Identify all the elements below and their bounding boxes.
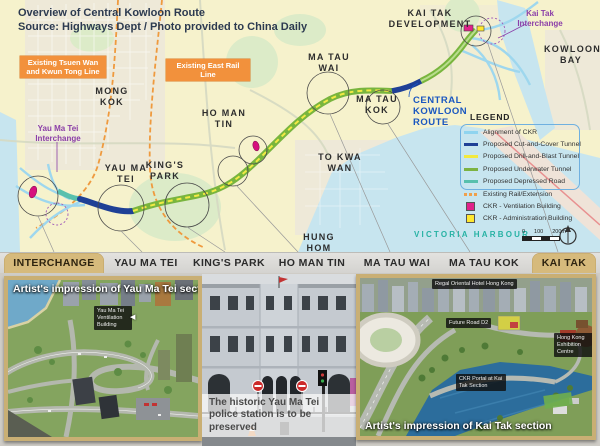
legend: LEGEND Alignment of CKR Proposed Cut-and… [458, 112, 600, 225]
legend-title: LEGEND [470, 112, 600, 122]
alignment-swatch [464, 131, 478, 134]
section-tabbar: INTERCHANGE YAU MA TEI KING'S PARK HO MA… [0, 252, 600, 274]
left-photo-caption: Artist's impression of Yau Ma Tei sectio… [13, 283, 202, 295]
middle-photo-caption: The historic Yau Ma Tei police station i… [202, 394, 356, 438]
page-source: Source: Highways Dept / Photo provided t… [18, 20, 307, 34]
scale-bar: 0 100 200m [522, 229, 566, 241]
legend-item: Proposed Cut-and-Cover Tunnel [458, 138, 600, 150]
drill-and-blast-swatch [464, 155, 478, 158]
district-kings-park: KING'S PARK [142, 160, 188, 181]
underwater-tunnel-swatch [464, 168, 478, 171]
tab-interchange[interactable]: INTERCHANGE [4, 253, 104, 274]
tab-ma-tau-kok[interactable]: MA TAU KOK [442, 253, 526, 274]
photo-yau-ma-tei-section: Artist's impression of Yau Ma Tei sectio… [4, 276, 202, 441]
legend-item: Existing Rail/Extension [458, 188, 600, 200]
legend-item: Proposed Drill-and-Blast Tunnel [458, 151, 600, 163]
district-kowloon-bay: KOWLOON BAY [544, 44, 598, 65]
district-ma-tau-wai: MA TAU WAI [298, 52, 360, 73]
district-ma-tau-kok: MA TAU KOK [354, 94, 400, 115]
kai-tak-rendering [360, 278, 592, 436]
cut-and-cover-swatch [464, 143, 478, 146]
rail-label-tsuen-wan: Existing Tsuen Wan and Kwun Tong Line [20, 56, 106, 78]
yau-ma-tei-rendering [8, 280, 198, 437]
label-victoria-harbour: VICTORIA HARBOUR [414, 230, 530, 239]
right-photo-caption: Artist's impression of Kai Tak section [365, 420, 552, 432]
rail-label-east-rail: Existing East Rail Line [166, 59, 250, 81]
district-hung-hom: HUNG HOM [290, 232, 348, 253]
district-mong-kok: MONG KOK [82, 86, 142, 107]
district-kai-tak-development: KAI TAK DEVELOPMENT [388, 8, 472, 29]
tab-kai-tak[interactable]: KAI TAK [532, 253, 596, 274]
administration-building-swatch [466, 214, 475, 223]
tab-ho-man-tin[interactable]: HO MAN TIN [272, 253, 352, 274]
ventilation-building-label: Yau Ma Tei Ventilation Building [94, 306, 132, 330]
tab-ma-tau-wai[interactable]: MA TAU WAI [356, 253, 438, 274]
page-title: Overview of Central Kowloon Route [18, 6, 307, 20]
infographic-page: Overview of Central Kowloon Route Source… [0, 0, 600, 446]
legend-item: Proposed Underwater Tunnel [458, 163, 600, 175]
hotel-label: Regal Oriental Hotel Hong Kong [432, 279, 517, 289]
page-title-block: Overview of Central Kowloon Route Source… [18, 6, 307, 34]
photo-row: Artist's impression of Yau Ma Tei sectio… [0, 273, 600, 446]
existing-rail-swatch [464, 193, 478, 196]
map-section: Overview of Central Kowloon Route Source… [0, 0, 600, 252]
future-road-label: Future Road D2 [446, 318, 491, 328]
label-yau-ma-tei-interchange: Yau Ma Tei Interchange [28, 124, 88, 143]
district-to-kwa-wan: TO KWA WAN [314, 152, 366, 173]
arrow-icon: ◀ [130, 313, 135, 321]
legend-item: CKR - Ventilation Building [458, 200, 600, 212]
depressed-road-swatch [464, 180, 478, 183]
ckr-portal-label: CKR Portal at Kai Tak Section [456, 374, 506, 391]
photo-kai-tak-section: Regal Oriental Hotel Hong Kong Future Ro… [356, 274, 596, 440]
legend-item: CKR - Administration Building [458, 213, 600, 225]
ventilation-building-swatch [466, 202, 475, 211]
photo-police-station: The historic Yau Ma Tei police station i… [202, 274, 356, 446]
exhibition-centre-label: Hong Kong Exhibition Centre [554, 333, 594, 357]
label-kai-tak-interchange: Kai Tak Interchange [514, 9, 566, 28]
tab-yau-ma-tei[interactable]: YAU MA TEI [108, 253, 184, 274]
district-ho-man-tin: HO MAN TIN [192, 108, 256, 129]
legend-item: Proposed Depressed Road [458, 176, 600, 188]
tab-kings-park[interactable]: KING'S PARK [190, 253, 268, 274]
legend-item: Alignment of CKR [458, 126, 600, 138]
administration-building [477, 26, 484, 31]
